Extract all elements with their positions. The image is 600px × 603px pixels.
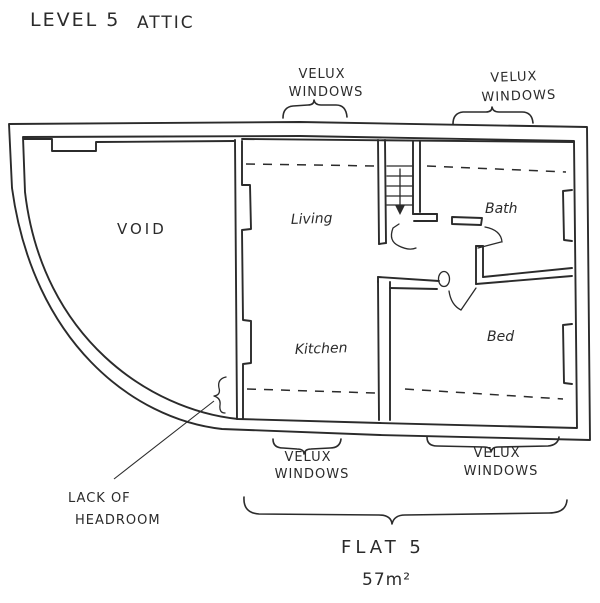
room-label-living: Living — [291, 211, 333, 228]
bath-bed-wall — [476, 246, 572, 284]
room-label-bed: Bed — [487, 329, 514, 345]
headroom-dashed-lines — [246, 164, 566, 399]
floor-plan-drawing: LEVEL 5 ATTIC VELUX WINDOWS VELUX WINDOW… — [0, 0, 600, 603]
velux-line1: VELUX — [284, 450, 331, 465]
velux-brace-top-left — [283, 100, 347, 118]
chimney-breast-bath — [563, 190, 572, 241]
velux-line1: VELUX — [473, 446, 520, 461]
velux-line2: WINDOWS — [464, 464, 539, 479]
room-label-kitchen: Kitchen — [295, 340, 348, 358]
room-label-void: VOID — [117, 220, 167, 238]
velux-label-bottom-left: VELUX WINDOWS — [275, 450, 350, 482]
headroom-line2: HEADROOM — [75, 513, 161, 528]
room-label-bath: Bath — [485, 201, 518, 217]
void-living-wall — [235, 140, 251, 419]
bed-door — [449, 288, 476, 310]
page-title-attic: ATTIC — [137, 13, 195, 33]
chimney-breast-bed — [563, 324, 572, 384]
door-jamb-knob — [439, 272, 450, 287]
stairs-turn-arrow-icon — [391, 224, 416, 249]
lack-of-headroom-label: LACK OF HEADROOM — [68, 491, 161, 528]
bath-door — [452, 217, 502, 248]
void-top-wall — [24, 139, 234, 151]
velux-line2: WINDOWS — [481, 88, 556, 106]
velux-line2: WINDOWS — [289, 85, 364, 100]
staircase — [378, 140, 437, 244]
velux-label-top-left: VELUX WINDOWS — [289, 67, 364, 100]
velux-line2: WINDOWS — [275, 467, 350, 482]
velux-line1: VELUX — [490, 69, 538, 86]
page-title-level: LEVEL 5 — [30, 9, 120, 31]
velux-label-bottom-right: VELUX WINDOWS — [464, 446, 539, 479]
headroom-line1: LACK OF — [68, 491, 131, 506]
velux-label-top-right: VELUX WINDOWS — [481, 69, 556, 105]
floor-plan-sketch: LEVEL 5 ATTIC VELUX WINDOWS VELUX WINDOW… — [0, 0, 600, 603]
velux-line1: VELUX — [298, 67, 345, 82]
velux-brace-top-right — [453, 107, 533, 124]
flat-extent-brace — [244, 497, 567, 524]
kitchen-bed-wall — [378, 272, 450, 421]
flat-area-label: 57m² — [362, 570, 411, 590]
flat-name-label: FLAT 5 — [341, 537, 425, 558]
